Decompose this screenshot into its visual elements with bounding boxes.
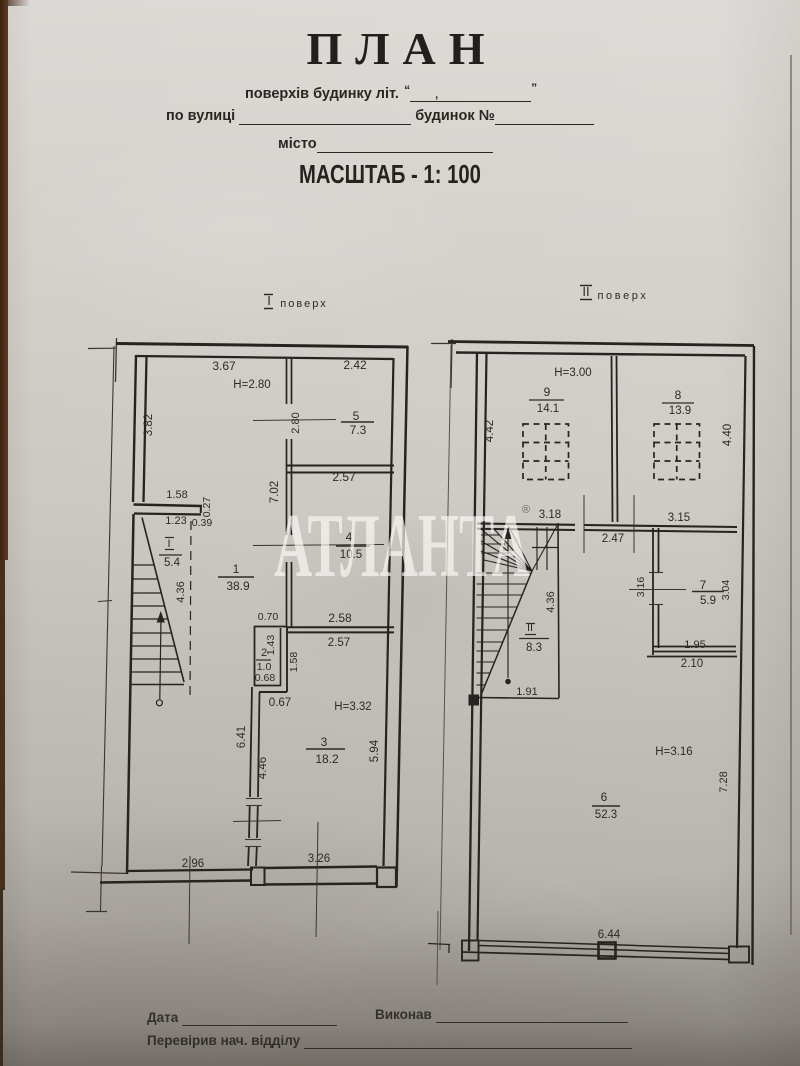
svg-text:52.3: 52.3 <box>595 809 617 821</box>
svg-text:3.67: 3.67 <box>212 359 236 373</box>
svg-text:1.91: 1.91 <box>516 686 537 698</box>
svg-text:H=3.16: H=3.16 <box>655 746 692 758</box>
svg-text:H=3.32: H=3.32 <box>334 701 371 713</box>
svg-text:8: 8 <box>675 388 682 402</box>
svg-text:18.2: 18.2 <box>315 752 339 766</box>
svg-text:0.68: 0.68 <box>255 672 276 684</box>
svg-text:6.41: 6.41 <box>236 726 248 748</box>
svg-text:I: I <box>167 538 170 550</box>
svg-text:4.36: 4.36 <box>545 591 557 612</box>
svg-text:0.39: 0.39 <box>192 517 213 529</box>
svg-text:38.9: 38.9 <box>226 579 250 593</box>
svg-text:H=2.80: H=2.80 <box>233 379 270 391</box>
svg-text:14.1: 14.1 <box>537 403 559 415</box>
svg-text:5.9: 5.9 <box>700 595 716 607</box>
svg-text:1.58: 1.58 <box>288 652 300 673</box>
svg-text:5.94: 5.94 <box>369 739 381 762</box>
svg-text:4.42: 4.42 <box>484 420 496 442</box>
svg-text:6.44: 6.44 <box>598 929 621 941</box>
svg-text:поверх: поверх <box>597 290 648 302</box>
svg-text:H=3.00: H=3.00 <box>554 367 591 379</box>
svg-text:поверх: поверх <box>280 298 327 310</box>
svg-text:4.46: 4.46 <box>257 757 269 779</box>
svg-text:13.9: 13.9 <box>669 405 691 417</box>
svg-text:3.26: 3.26 <box>308 853 330 865</box>
svg-text:2.80: 2.80 <box>290 412 302 433</box>
svg-text:3.16: 3.16 <box>635 577 647 598</box>
svg-text:2.57: 2.57 <box>332 470 356 484</box>
svg-text:2.96: 2.96 <box>182 858 204 870</box>
svg-text:7.28: 7.28 <box>718 771 730 792</box>
svg-text:0.27: 0.27 <box>201 497 213 518</box>
svg-text:4.36: 4.36 <box>175 581 187 602</box>
svg-text:0.70: 0.70 <box>258 611 279 623</box>
svg-text:7: 7 <box>700 578 707 592</box>
svg-text:2.42: 2.42 <box>343 358 367 372</box>
svg-text:2.47: 2.47 <box>602 533 624 545</box>
svg-text:9: 9 <box>544 385 551 399</box>
svg-text:2.58: 2.58 <box>328 611 352 625</box>
svg-text:3: 3 <box>321 735 328 749</box>
svg-text:5.4: 5.4 <box>164 557 181 569</box>
svg-text:2.57: 2.57 <box>328 637 350 649</box>
svg-text:3.04: 3.04 <box>720 580 732 601</box>
svg-text:5: 5 <box>353 409 360 423</box>
svg-text:6: 6 <box>601 790 608 804</box>
svg-text:1: 1 <box>233 562 240 576</box>
svg-text:1.95: 1.95 <box>684 639 705 651</box>
svg-text:II: II <box>582 284 589 299</box>
svg-text:3.18: 3.18 <box>539 509 561 521</box>
svg-text:8.3: 8.3 <box>526 642 542 654</box>
svg-text:3.15: 3.15 <box>668 512 690 524</box>
svg-text:1.23: 1.23 <box>165 515 186 527</box>
svg-text:4.40: 4.40 <box>722 424 734 446</box>
svg-text:1.58: 1.58 <box>166 489 187 501</box>
svg-text:2.10: 2.10 <box>681 658 703 670</box>
svg-text:3.82: 3.82 <box>143 414 155 436</box>
svg-text:I: I <box>267 293 271 308</box>
svg-text:7.3: 7.3 <box>350 423 367 437</box>
svg-text:0.67: 0.67 <box>269 697 291 709</box>
svg-text:1.43: 1.43 <box>265 635 277 656</box>
